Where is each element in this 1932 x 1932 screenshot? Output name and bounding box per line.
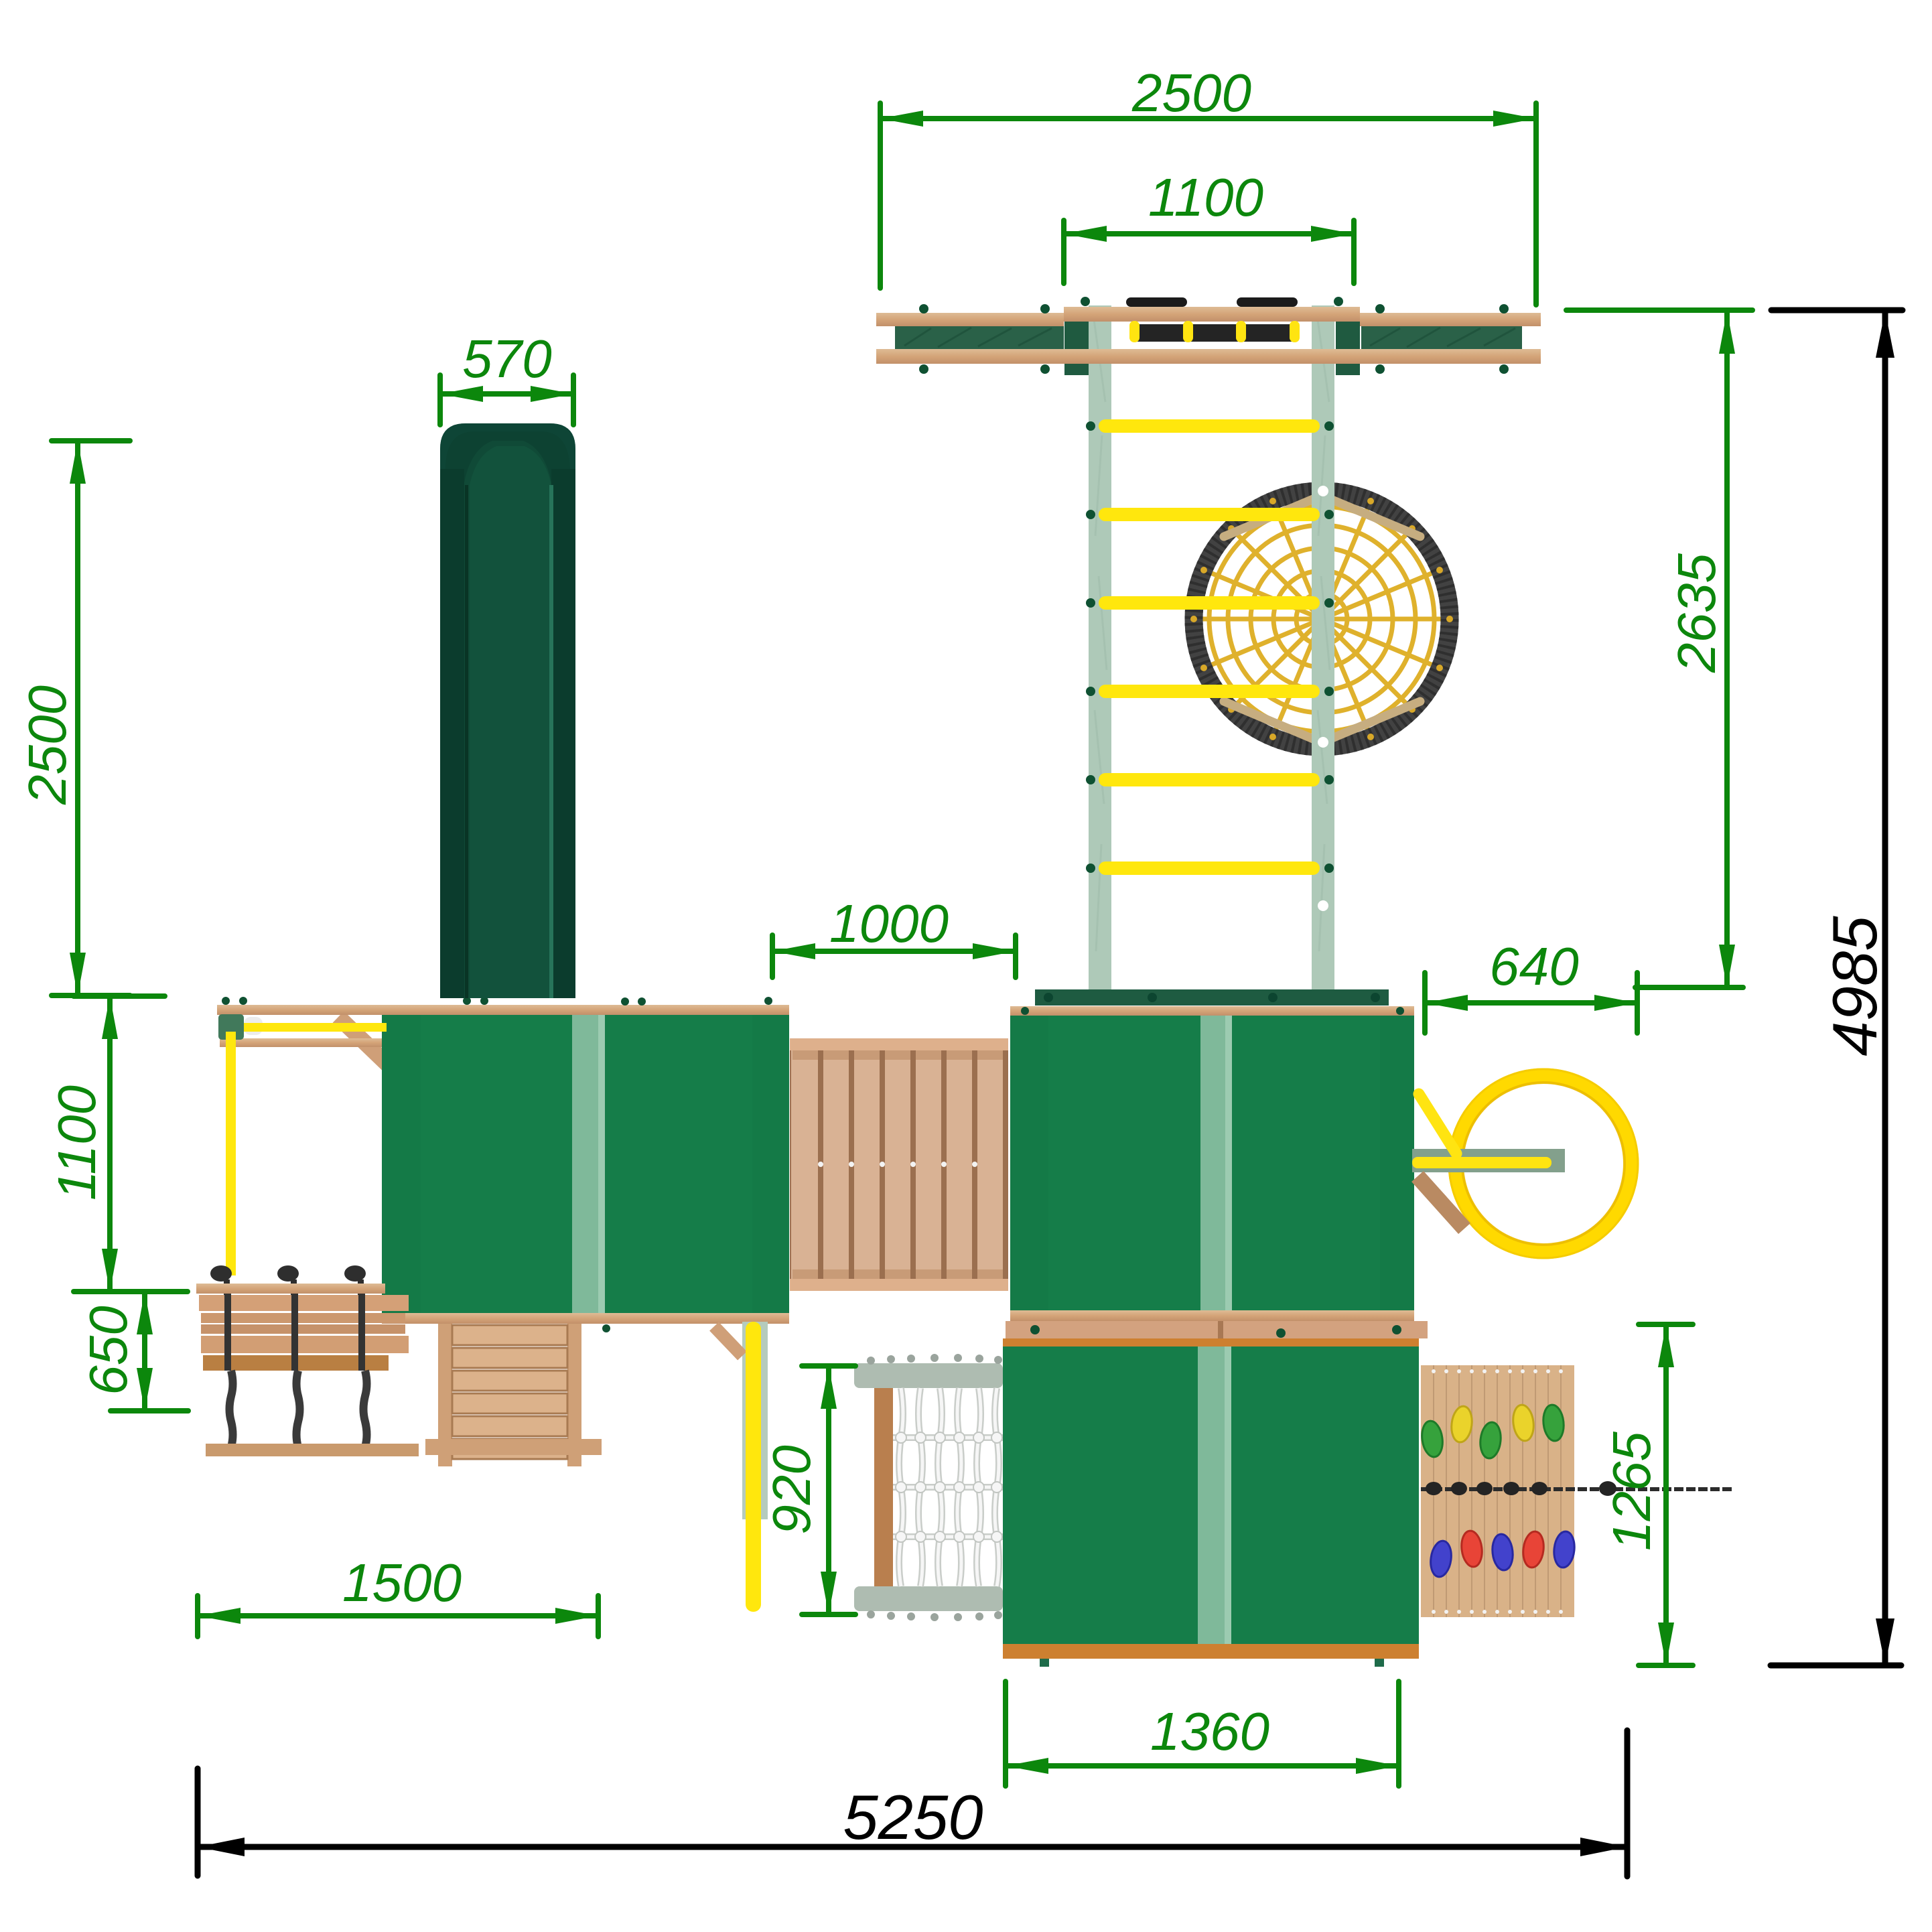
svg-text:640: 640 — [1489, 937, 1578, 996]
svg-text:1500: 1500 — [342, 1553, 462, 1612]
svg-text:650: 650 — [78, 1306, 138, 1395]
svg-text:5250: 5250 — [843, 1782, 983, 1852]
svg-text:570: 570 — [462, 329, 551, 389]
svg-text:920: 920 — [762, 1445, 821, 1534]
svg-text:1100: 1100 — [1148, 167, 1263, 227]
svg-text:1100: 1100 — [47, 1085, 107, 1200]
svg-text:2500: 2500 — [17, 685, 77, 805]
svg-text:4985: 4985 — [1819, 916, 1890, 1056]
svg-text:1360: 1360 — [1150, 1702, 1269, 1761]
svg-text:1265: 1265 — [1602, 1432, 1661, 1551]
svg-text:2635: 2635 — [1667, 553, 1726, 673]
svg-text:2500: 2500 — [1131, 63, 1251, 123]
svg-text:1000: 1000 — [829, 894, 949, 953]
